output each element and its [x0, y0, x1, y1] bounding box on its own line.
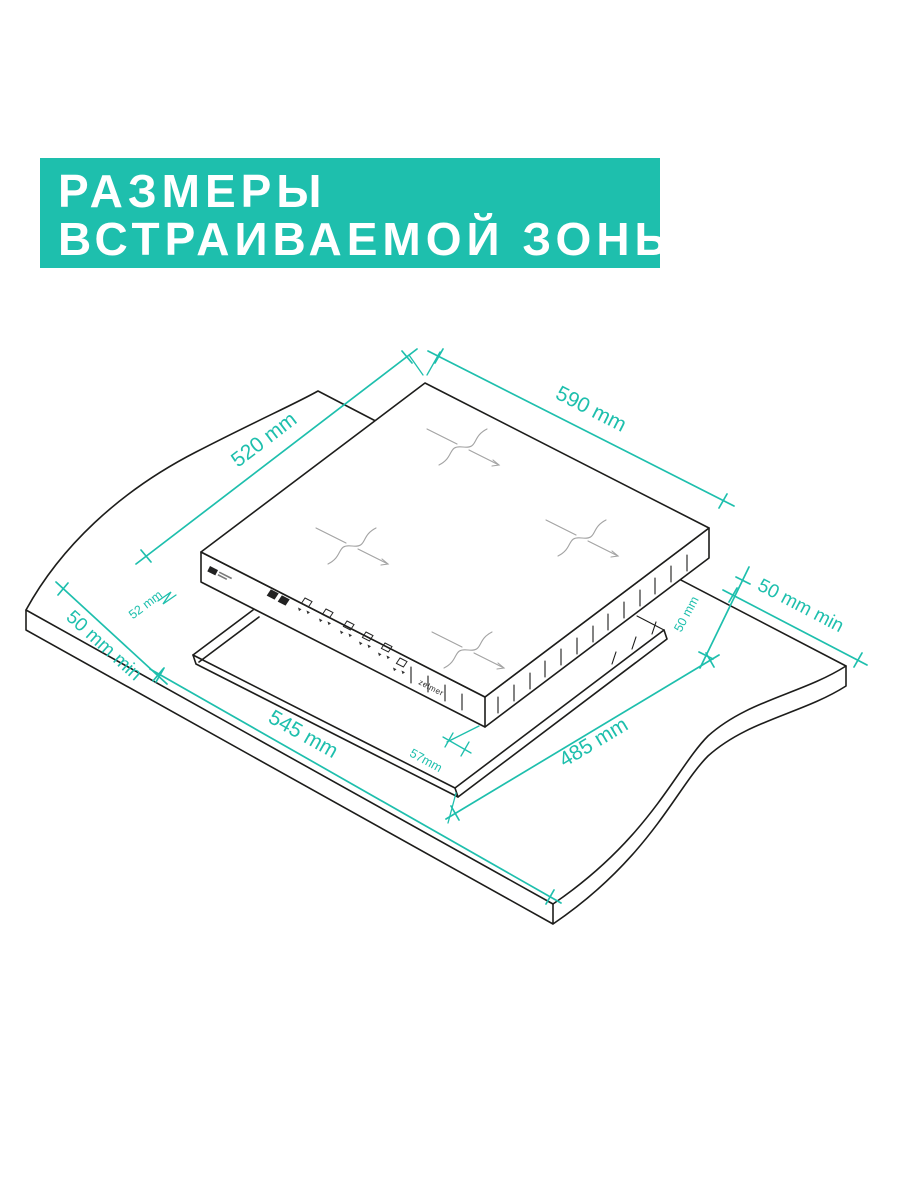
dim-label-590: 590 mm — [552, 382, 630, 437]
installation-diagram: zelmer 520 mm 590 mm 52 mm 50 mm min — [0, 0, 900, 1200]
